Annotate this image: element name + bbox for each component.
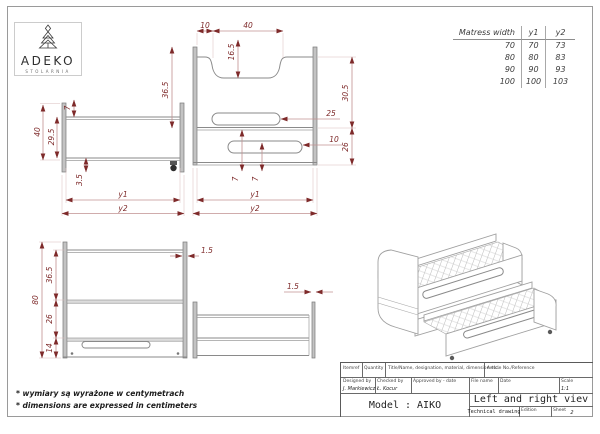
screw-dot	[177, 352, 180, 355]
side-view-drawing: 7 40 29.5 3.5 y1 y2	[33, 100, 184, 216]
dim-label: 30.5	[341, 84, 350, 101]
title-name-label: Title/Name, designation, material, dimen…	[388, 366, 499, 371]
dim-label: 1.5	[287, 282, 299, 291]
handle-slot-upper	[212, 113, 280, 125]
trundle-wheel	[450, 356, 454, 360]
approved-by-label: Approved by - date	[413, 379, 456, 384]
scale-label: Scale	[561, 379, 573, 384]
drawing-title: Left and right viev	[469, 393, 593, 406]
panel-edge-strip	[312, 302, 315, 358]
date-label: Date	[500, 379, 511, 384]
quantity-label: Quantity	[364, 366, 383, 371]
dim-label: 10	[329, 135, 339, 144]
table-cell: 80	[453, 52, 521, 64]
dim-label: y1	[117, 190, 127, 199]
table-cell: 93	[545, 64, 575, 76]
dim-label: 7	[231, 176, 240, 181]
front-view-drawing: 80 36.5 26 14 1.5 1.5	[31, 242, 333, 358]
table-cell: 80	[521, 52, 545, 64]
footnotes: * wymiary są wyrażone w centymetrach * d…	[16, 388, 197, 412]
file-name-label: File name	[471, 379, 493, 384]
dim-label: 16.5	[227, 43, 236, 60]
drawing-sheet: 7 40 29.5 3.5 y1 y2	[0, 0, 600, 434]
right-view-drawing: 10 40 16.5 36.5 30.5 26 25 10 7 7 y1 y2	[161, 21, 356, 216]
brand-name: ADEKO	[15, 54, 81, 68]
dim-label: 7	[251, 176, 260, 181]
footnote-pl: * wymiary są wyrażone w centymetrach	[16, 388, 197, 400]
dim-label: 36.5	[45, 266, 54, 283]
trundle-wheel	[548, 330, 552, 334]
dim-label: 25	[326, 109, 336, 118]
dim-label: 1.5	[201, 246, 213, 255]
dim-label: y2	[117, 204, 127, 213]
table-cell: 100	[453, 76, 521, 88]
dim-label: 40	[243, 21, 253, 30]
dim-label: 80	[31, 295, 40, 305]
dim-label: 40	[33, 127, 42, 137]
designed-by-label: Designed by	[343, 379, 371, 384]
handle-slot-lower	[228, 141, 302, 153]
caster-bracket	[170, 161, 177, 165]
drawing-type: Technical drawing	[469, 406, 519, 417]
tree-icon	[16, 23, 80, 50]
title-block: Itemref Quantity Title/Name, designation…	[340, 362, 593, 417]
drawer-handle	[82, 342, 150, 349]
table-cell: 73	[545, 40, 575, 52]
table-header: y1	[521, 26, 545, 40]
model-name: Model : AIKO	[341, 393, 469, 417]
table-header: y2	[545, 26, 575, 40]
dim-label: 26	[45, 314, 54, 324]
dim-label: y2	[249, 204, 259, 213]
table-cell: 70	[453, 40, 521, 52]
headboard-panel	[378, 250, 418, 334]
adeko-logo: ADEKO STOLARNIA	[14, 22, 82, 76]
checked-by-label: Checked by	[377, 379, 403, 384]
brand-subtitle: STOLARNIA	[15, 69, 81, 74]
table-cell: 103	[545, 76, 575, 88]
table-cell: 100	[521, 76, 545, 88]
footnote-en: * dimensions are expressed in centimeter…	[16, 400, 197, 412]
table-cell: 90	[453, 64, 521, 76]
screw-dot	[71, 352, 74, 355]
table-cell: 90	[521, 64, 545, 76]
table-header: Matress width	[453, 26, 521, 40]
article-label: Article No./Reference	[487, 366, 535, 371]
mattress-table: Matress width y1 y2 70 70 73 80 80 83 90…	[453, 26, 575, 88]
dim-label: 14	[45, 343, 54, 353]
table-cell: 83	[545, 52, 575, 64]
dim-label: 26	[341, 142, 350, 152]
dim-label: 7	[63, 105, 72, 110]
dim-label: 10	[200, 21, 210, 30]
dim-label: 29.5	[47, 128, 56, 145]
isometric-view	[378, 234, 556, 360]
caster-wheel	[170, 165, 176, 171]
designed-by-value: J. Markiewicz	[343, 386, 375, 392]
sheet-value: 2	[551, 410, 593, 416]
edition-label: Edition	[521, 408, 537, 413]
table-cell: 70	[521, 40, 545, 52]
dim-label: 3.5	[75, 174, 84, 186]
dim-label: y1	[249, 190, 259, 199]
itemref-label: Itemref	[343, 366, 359, 371]
dim-label: 36.5	[161, 81, 170, 98]
scale-value: 1:1	[561, 386, 569, 392]
checked-by-value: Ł. Kocur	[377, 386, 397, 392]
